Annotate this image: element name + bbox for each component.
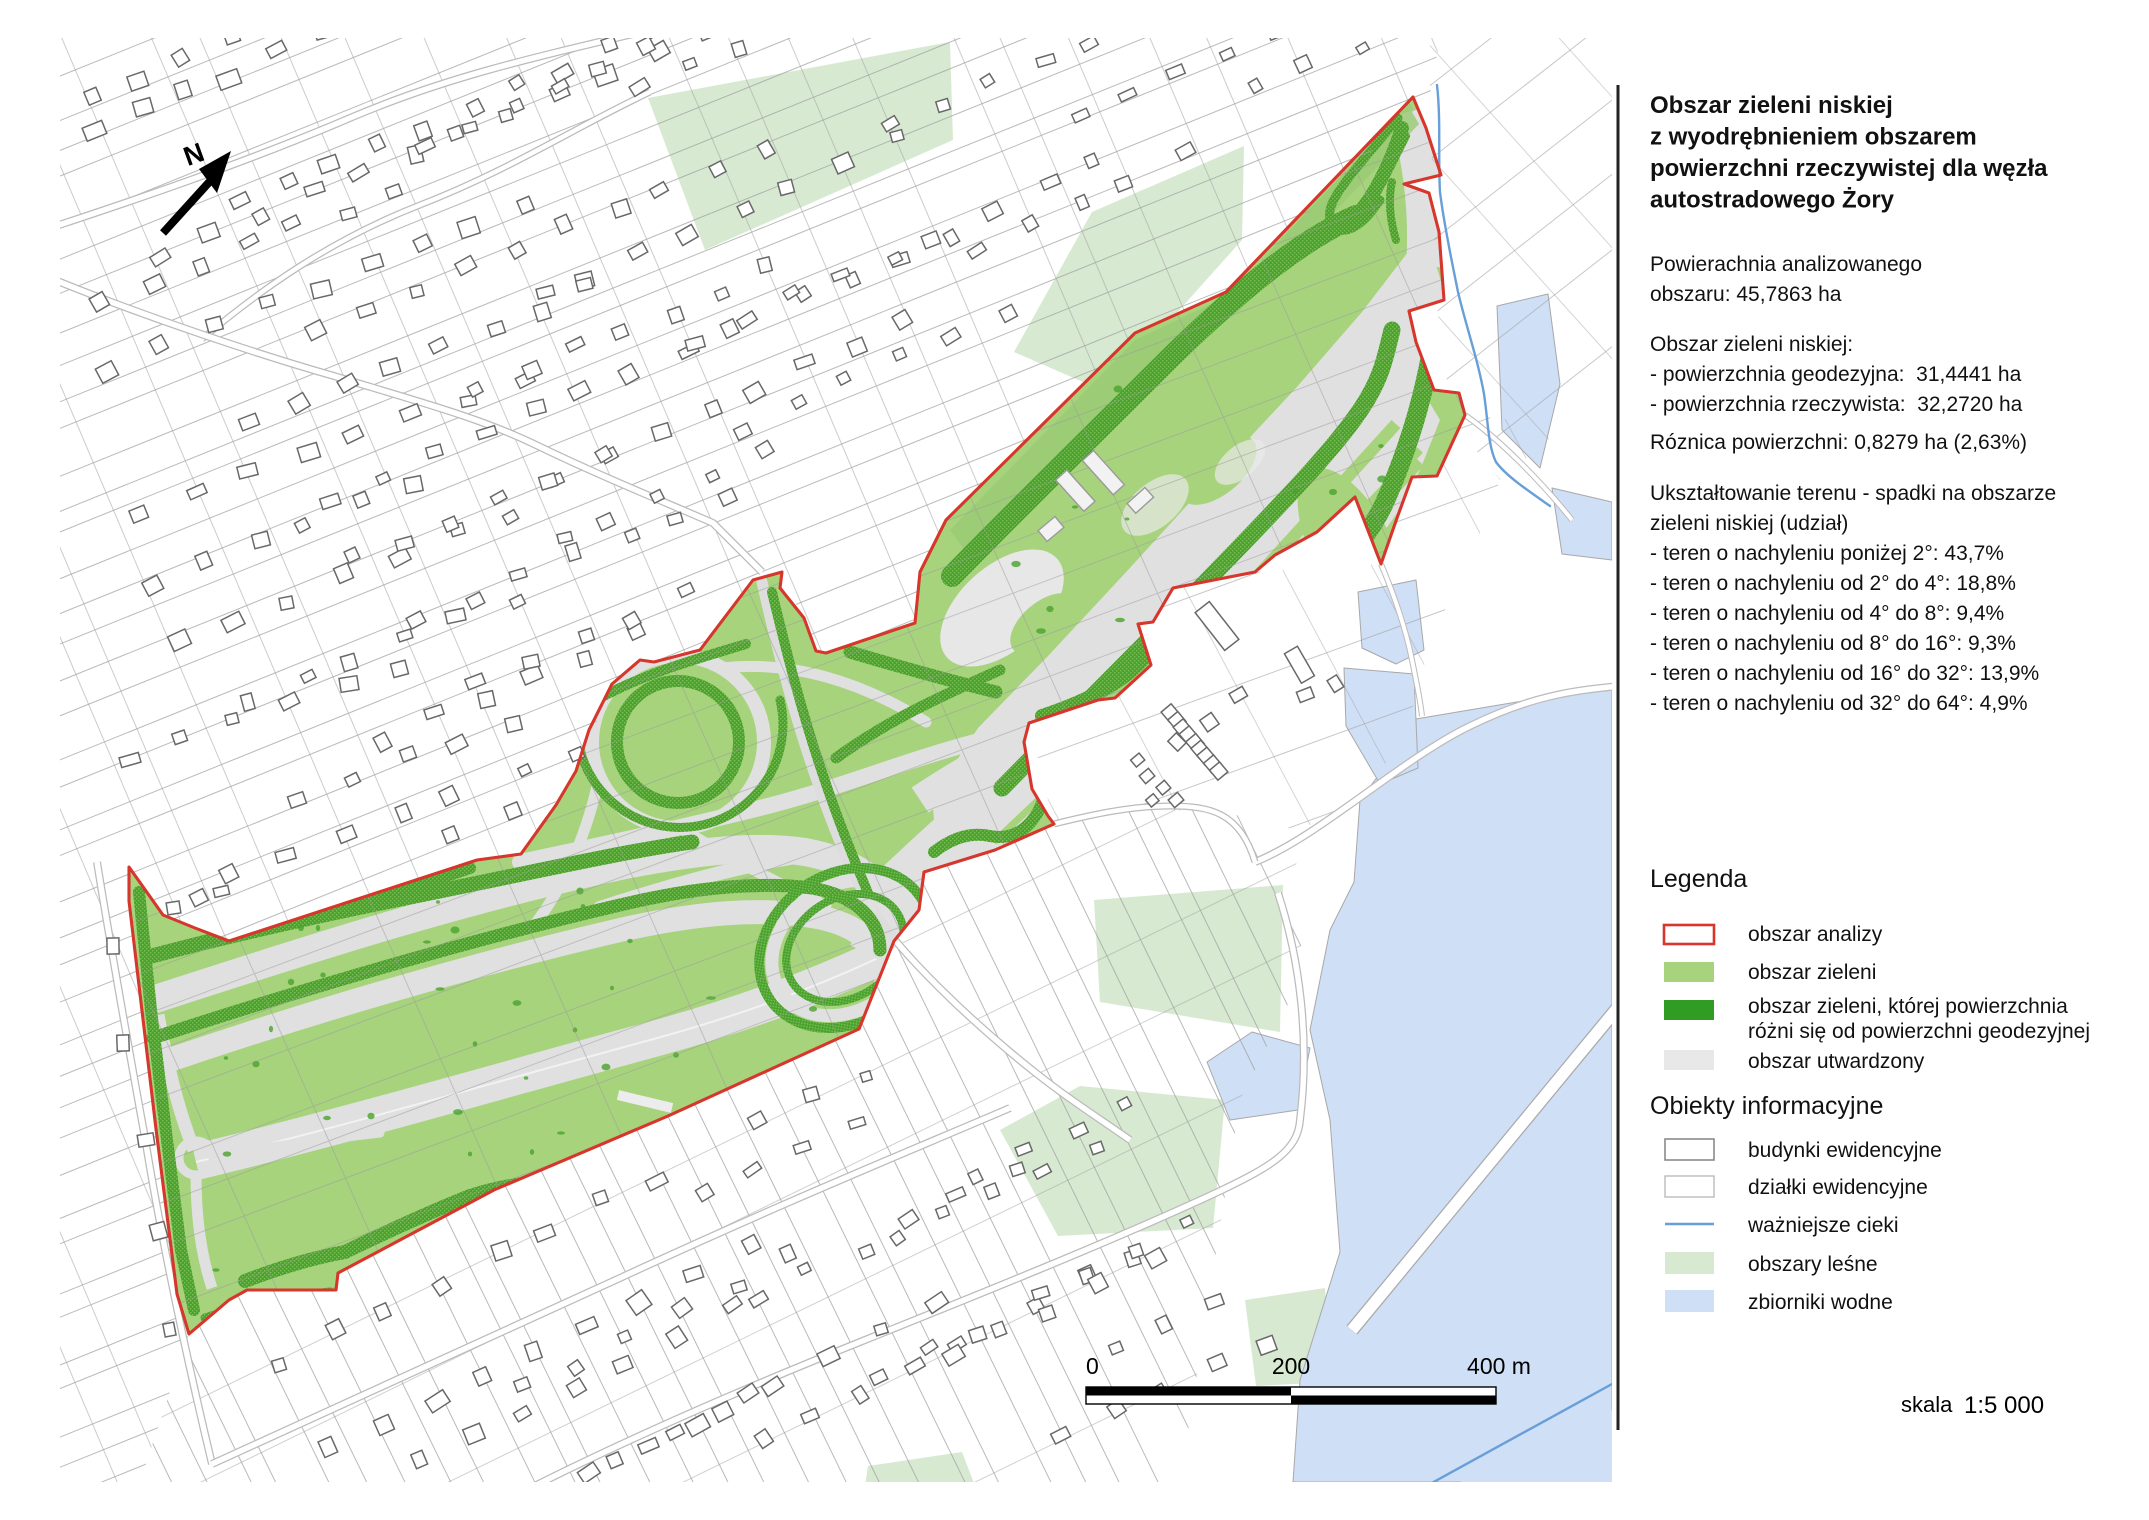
svg-text:0: 0 <box>1086 1353 1099 1379</box>
svg-text:obszar zieleni, której powierz: obszar zieleni, której powierzchnia <box>1748 995 2068 1018</box>
svg-text:1:5 000: 1:5 000 <box>1964 1392 2044 1419</box>
svg-text:skala: skala <box>1901 1392 1953 1417</box>
svg-text:działki ewidencyjne: działki ewidencyjne <box>1748 1176 1928 1199</box>
svg-text:budynki ewidencyjne: budynki ewidencyjne <box>1748 1139 1942 1162</box>
svg-text:Obiekty informacyjne: Obiekty informacyjne <box>1650 1092 1883 1120</box>
svg-text:obszar utwardzony: obszar utwardzony <box>1748 1050 1925 1073</box>
svg-text:200: 200 <box>1272 1353 1310 1379</box>
svg-text:Legenda: Legenda <box>1650 865 1747 893</box>
svg-text:obszar zieleni: obszar zieleni <box>1748 961 1876 984</box>
svg-text:ważniejsze cieki: ważniejsze cieki <box>1747 1214 1899 1237</box>
svg-text:obszary leśne: obszary leśne <box>1748 1253 1878 1276</box>
svg-text:różni się od powierzchni geode: różni się od powierzchni geodezyjnej <box>1748 1020 2090 1043</box>
svg-text:obszar analizy: obszar analizy <box>1748 923 1883 946</box>
svg-text:zbiorniki wodne: zbiorniki wodne <box>1748 1291 1893 1314</box>
svg-text:400 m: 400 m <box>1467 1353 1531 1379</box>
svg-text:Róznica powierzchni: 0,8279 ha: Róznica powierzchni: 0,8279 ha (2,63%) <box>1650 431 2027 454</box>
